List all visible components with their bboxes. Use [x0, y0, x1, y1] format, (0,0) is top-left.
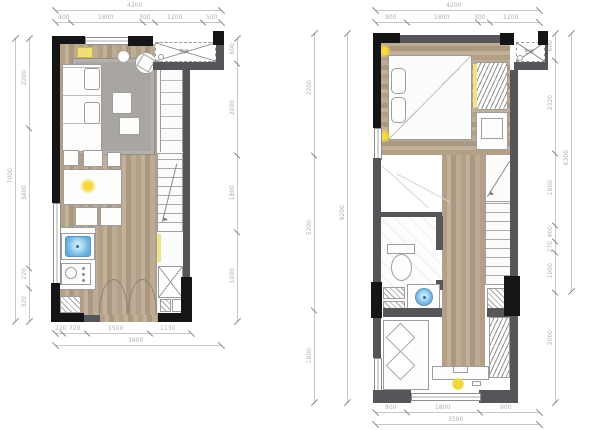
wardrobe-hanging-rail — [476, 62, 508, 110]
wall-mid-band — [383, 308, 442, 317]
dim-line-left-total — [347, 33, 348, 403]
ac-drain — [517, 55, 523, 61]
wall-left — [373, 318, 381, 358]
dim-label: 6300 — [564, 150, 570, 165]
wall-top — [381, 35, 508, 43]
dim-line-left-segments — [314, 33, 315, 403]
dim-line-top-total — [375, 10, 540, 11]
stairs — [485, 201, 512, 285]
washer-icon — [383, 287, 405, 299]
dim-label: 900 — [500, 405, 511, 411]
dim-label: 600 — [548, 40, 554, 51]
floor-plans-canvas: 4200 400 1800 300 1200 500 7000 2200 340… — [0, 0, 600, 430]
wall-top-black — [500, 33, 514, 45]
wall-bottom — [373, 390, 411, 403]
wall-left-black — [371, 282, 382, 318]
dim-label: 400 — [548, 226, 554, 237]
dim-line-bottom-total — [375, 424, 540, 425]
wall-right — [510, 70, 518, 278]
dim-label: 9200 — [340, 205, 346, 220]
dim-label: 300 — [474, 15, 485, 21]
corridor-floor — [442, 155, 485, 378]
dim-label: 1800 — [435, 405, 450, 411]
window — [411, 393, 481, 401]
dim-line-right-total — [571, 33, 572, 292]
sink-drain — [423, 296, 426, 299]
desk-chair — [452, 378, 464, 390]
desk-monitor — [453, 366, 468, 373]
dim-label: 1800 — [307, 348, 313, 363]
dim-label: 1000 — [548, 263, 554, 278]
window — [374, 358, 382, 392]
dim-label: 3500 — [448, 417, 463, 423]
dim-line-right-segments — [555, 33, 556, 403]
bathroom-wall — [381, 212, 442, 217]
wall-left — [373, 158, 381, 284]
wall-bottom — [479, 390, 518, 403]
dim-label: 2000 — [548, 330, 554, 345]
wall-left-black — [373, 33, 381, 128]
storage-box — [481, 118, 503, 139]
dim-label: 2200 — [307, 80, 313, 95]
dim-label: 4200 — [446, 3, 461, 9]
dim-label: 800 — [385, 405, 396, 411]
plan-second-floor: 4200 800 1800 300 1200 2200 5200 1800 92… — [0, 0, 600, 430]
dim-label: 1800 — [434, 15, 449, 21]
dim-line-bottom-segments — [375, 412, 540, 413]
dim-label: 270 — [548, 241, 554, 252]
accent-strip — [473, 64, 477, 108]
wall-right-black — [504, 276, 520, 316]
toilet-tank — [387, 244, 415, 254]
dim-label: 1200 — [503, 15, 518, 21]
window — [374, 128, 382, 160]
desk-lamp — [472, 381, 481, 386]
pillow — [391, 97, 406, 123]
dim-label: 800 — [385, 15, 396, 21]
wall-ac-black — [538, 31, 548, 45]
dim-label: 1800 — [548, 180, 554, 195]
void-double-height — [381, 155, 442, 213]
dim-line-top-segments — [375, 22, 540, 23]
hanging-clothes-rail — [489, 317, 510, 378]
ac-unit-label: 空调 — [525, 50, 534, 55]
bathroom-wall — [436, 216, 443, 250]
toilet-icon — [391, 254, 412, 281]
pillow — [391, 68, 406, 94]
dim-label: 5200 — [307, 220, 313, 235]
dim-label: 2320 — [548, 95, 554, 110]
